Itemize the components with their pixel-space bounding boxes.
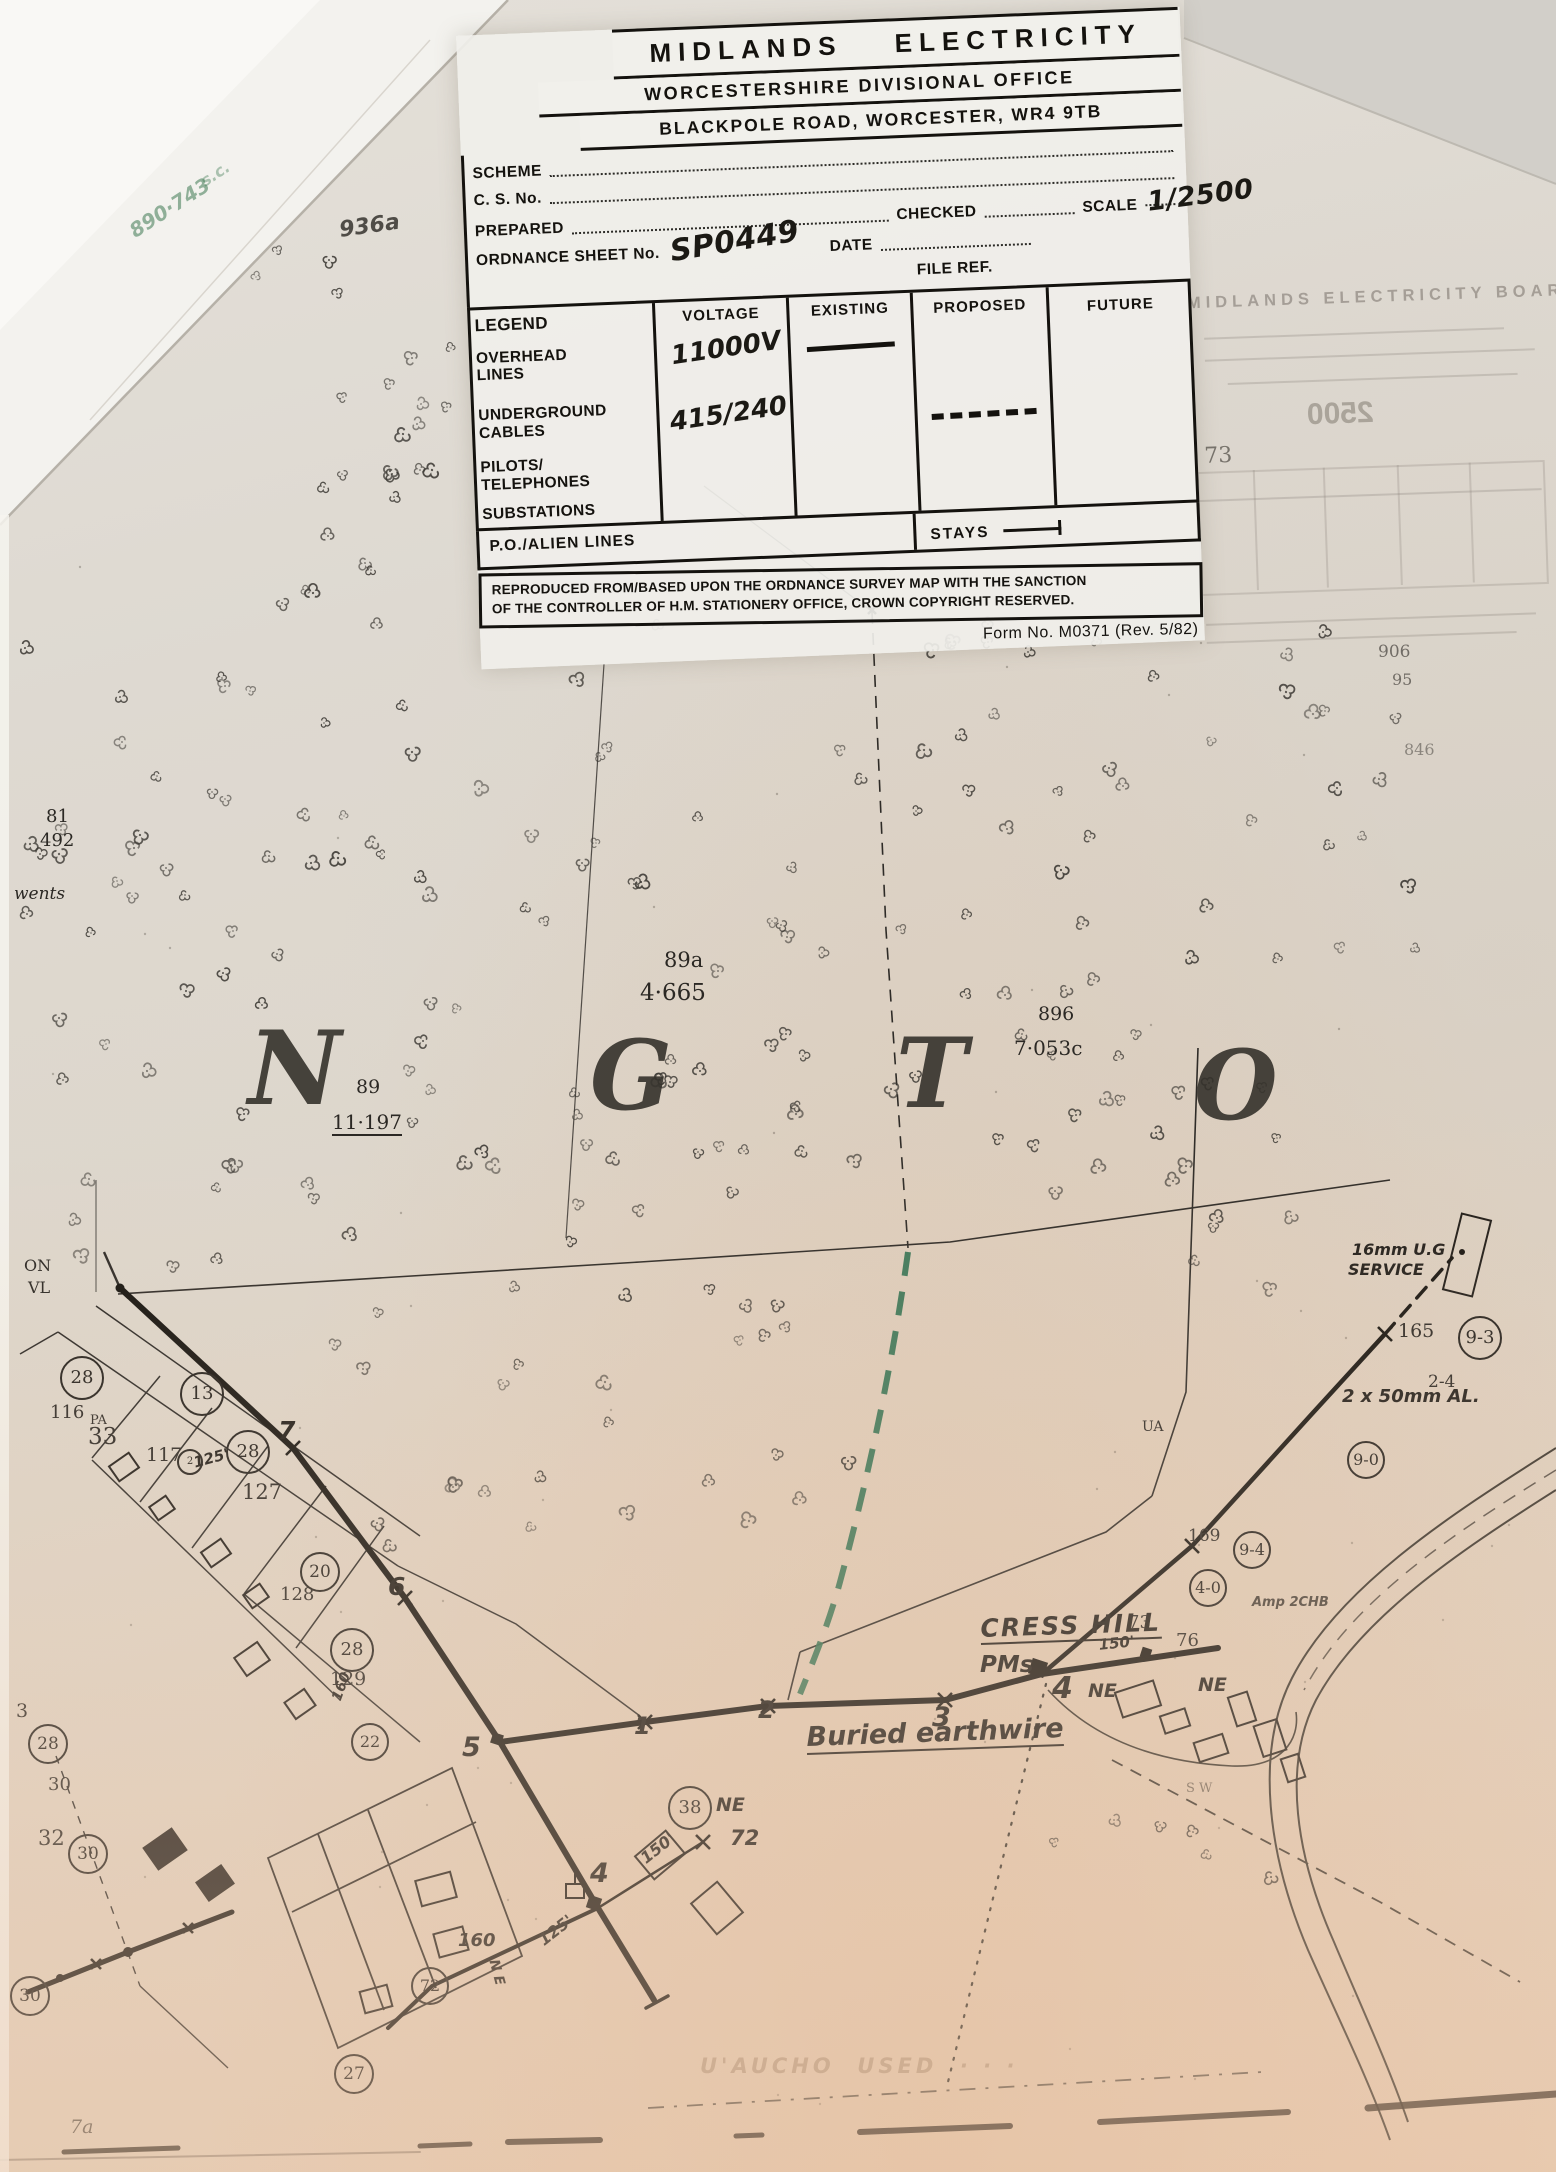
parcel-area: 4·665 <box>640 982 706 1005</box>
parcel-number: 846 <box>1404 742 1435 758</box>
parcel-number: 81 <box>46 808 69 826</box>
prepared-label: PREPARED <box>475 220 565 242</box>
existing-line-sample <box>807 341 895 352</box>
map-number: 7a <box>70 2118 93 2137</box>
map-number: 30 <box>48 1776 71 1794</box>
service-note: SERVICE <box>1348 1262 1424 1278</box>
map-word: NE <box>1088 1682 1117 1701</box>
map-number: 160 <box>458 1932 496 1950</box>
map-word: N E <box>486 1958 506 1987</box>
map-word: NE <box>716 1796 745 1815</box>
house-number: 33 <box>88 1426 117 1449</box>
ordnance-label: ORDNANCE SHEET No. <box>476 245 660 270</box>
circled-pole-number: 28 <box>226 1430 270 1474</box>
circled-pole-number: 13 <box>180 1372 224 1416</box>
future-header: FUTURE <box>1053 294 1188 316</box>
circled-pole-number: 9-4 <box>1233 1531 1271 1569</box>
circled-pole-number: 20 <box>300 1552 340 1592</box>
span-length: 150' <box>638 1830 678 1866</box>
map-number: 32 <box>38 1828 65 1849</box>
date-field <box>880 231 1030 251</box>
place-name-big-letter: G <box>590 1028 672 1124</box>
stay-symbol <box>1003 519 1062 537</box>
place-name-big-letter: T <box>896 1026 967 1122</box>
scheme-label: SCHEME <box>472 162 542 183</box>
legend-table: LEGEND OVERHEAD LINES UNDERGROUND CABLES… <box>467 279 1199 532</box>
map-word: S W <box>1186 1782 1212 1795</box>
map-word: wents <box>14 886 65 903</box>
pole-id: 72 <box>730 1828 759 1849</box>
parcel-number: 906 <box>1378 644 1410 661</box>
pole-number: 4 <box>1052 1674 1073 1704</box>
pole-number: 1 <box>634 1714 651 1738</box>
pole-number: 7 <box>278 1418 295 1443</box>
checked-label: CHECKED <box>896 203 977 224</box>
circled-pole-number: 38 <box>668 1786 712 1830</box>
legend-existing-column: EXISTING <box>786 293 919 516</box>
margin-note: 936a <box>338 212 401 242</box>
circled-pole-number: 72 <box>411 1967 449 2005</box>
scanned-map-photo: 81492wents89a4·6658967·053c8911·19790695… <box>0 0 1556 2172</box>
house-number: 127 <box>242 1482 282 1503</box>
proposed-line-sample <box>932 408 1037 420</box>
voltage-header: VOLTAGE <box>659 304 783 326</box>
legend-voltage-column: VOLTAGE 11000V 415/240 <box>652 298 795 521</box>
service-note: 16mm U.G <box>1352 1242 1445 1258</box>
stays-label: STAYS <box>930 523 990 543</box>
pole-number: 6 <box>388 1574 405 1599</box>
house-number: 76 <box>1176 1632 1199 1650</box>
map-word: UA <box>1142 1420 1163 1434</box>
parcel-area: 95 <box>1392 672 1412 688</box>
existing-header: EXISTING <box>793 299 907 321</box>
parcel-area: 11·197 <box>332 1112 402 1136</box>
form-fields: SCHEME C. S. No. PREPARED CHECKED SCALE … <box>461 127 1191 308</box>
circled-pole-number: 27 <box>334 2054 374 2094</box>
faint-ghost-text: U'AUCHO USED · · · <box>700 2056 1018 2077</box>
equipment-label: PMs <box>980 1654 1033 1677</box>
parcel-number: 89a <box>664 950 703 971</box>
legend-row-overhead: OVERHEAD LINES <box>476 345 587 385</box>
house-number: 116 <box>50 1404 84 1422</box>
parcel-number: 89 <box>356 1078 380 1097</box>
parcel-number: 896 <box>1038 1005 1074 1024</box>
green-pencil-note: 890·743 <box>126 174 213 240</box>
pole-number: 4 <box>590 1860 609 1887</box>
place-name-big-letter: N <box>248 1018 341 1120</box>
pole-id: 169 <box>1188 1528 1220 1545</box>
circled-pole-number: 4-0 <box>1189 1569 1227 1607</box>
circled-pole-number: 28 <box>330 1628 374 1672</box>
place-name-big-letter: O <box>1194 1038 1278 1134</box>
copyright-notice: REPRODUCED FROM/BASED UPON THE ORDNANCE … <box>478 562 1203 628</box>
cable-note: Buried earthwire <box>806 1715 1064 1755</box>
proposed-header: PROPOSED <box>917 296 1043 318</box>
voltage-underground-value: 415/240 <box>668 391 788 438</box>
circled-pole-number: 9-3 <box>1458 1316 1502 1360</box>
voltage-overhead-value: 11000V <box>669 325 785 371</box>
circled-pole-number: 28 <box>60 1356 104 1400</box>
conductor-note: 2 x 50mm AL. <box>1342 1388 1480 1406</box>
equipment-label: Amp 2CHB <box>1252 1596 1329 1609</box>
scale-label: SCALE <box>1082 197 1138 217</box>
legend-row-underground: UNDERGROUND CABLES <box>478 401 629 443</box>
map-number: 3 <box>16 1702 28 1721</box>
green-pencil-note: s.c. <box>198 159 233 189</box>
span-length: 125' <box>536 1912 576 1948</box>
cs-no-label: C. S. No. <box>473 190 542 211</box>
map-word: NE <box>1198 1676 1227 1695</box>
parcel-area: 7·053c <box>1014 1038 1082 1058</box>
legend-proposed-column: PROPOSED <box>910 287 1055 510</box>
legend-row-pilots: PILOTS/ TELEPHONES <box>480 454 601 494</box>
map-word: VL <box>28 1280 50 1296</box>
circled-pole-number: 22 <box>351 1723 389 1761</box>
pole-number: 2 <box>758 1698 775 1722</box>
pole-id: 165 <box>1398 1322 1434 1341</box>
legend-future-column: FUTURE <box>1046 282 1200 506</box>
circled-pole-number: 30 <box>10 1976 50 2016</box>
legend-label-column: LEGEND OVERHEAD LINES UNDERGROUND CABLES… <box>470 303 661 528</box>
title-block-form: MIDLANDS ELECTRICITY WORCESTERSHIRE DIVI… <box>456 7 1205 669</box>
legend-title: LEGEND <box>474 309 649 336</box>
circled-pole-number: 28 <box>28 1724 68 1764</box>
legend-row-substations: SUBSTATIONS <box>482 500 657 525</box>
circled-pole-number: 9-0 <box>1347 1441 1385 1479</box>
file-ref-label: FILE REF. <box>916 258 993 279</box>
circled-pole-number: 2 <box>177 1449 203 1475</box>
map-word: ON <box>24 1258 51 1274</box>
checked-field <box>984 200 1074 218</box>
circled-pole-number: 30 <box>68 1834 108 1874</box>
date-label: DATE <box>829 236 873 256</box>
parcel-area: 492 <box>40 832 74 850</box>
pole-number: 5 <box>462 1734 481 1761</box>
